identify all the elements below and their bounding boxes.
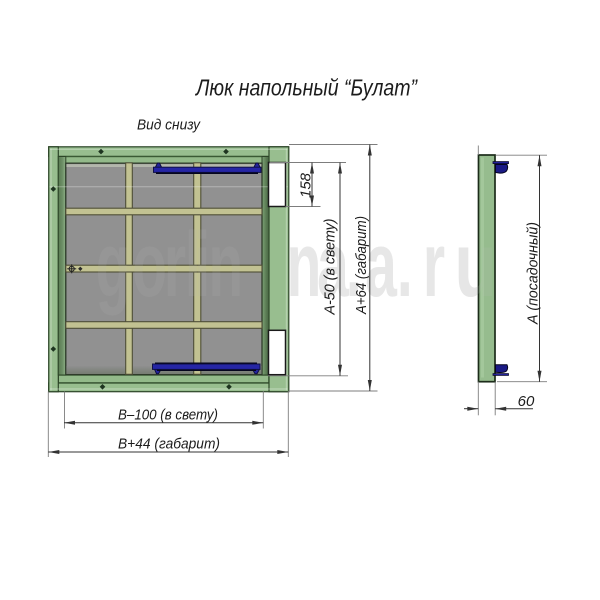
- svg-text:158: 158: [298, 172, 315, 198]
- svg-text:u: u: [455, 213, 497, 316]
- svg-text:Люк напольный “Булат”: Люк напольный “Булат”: [194, 75, 418, 101]
- svg-text:А (посадочный): А (посадочный): [524, 222, 541, 325]
- svg-text:60: 60: [518, 393, 535, 410]
- svg-text:А+64 (габарит): А+64 (габарит): [353, 216, 370, 315]
- svg-text:Вид снизу: Вид снизу: [137, 118, 201, 134]
- svg-text:А-50 (в свету): А-50 (в свету): [322, 219, 339, 316]
- svg-text:В–100 (в свету): В–100 (в свету): [118, 406, 218, 423]
- svg-text:В+44 (габарит): В+44 (габарит): [118, 435, 220, 452]
